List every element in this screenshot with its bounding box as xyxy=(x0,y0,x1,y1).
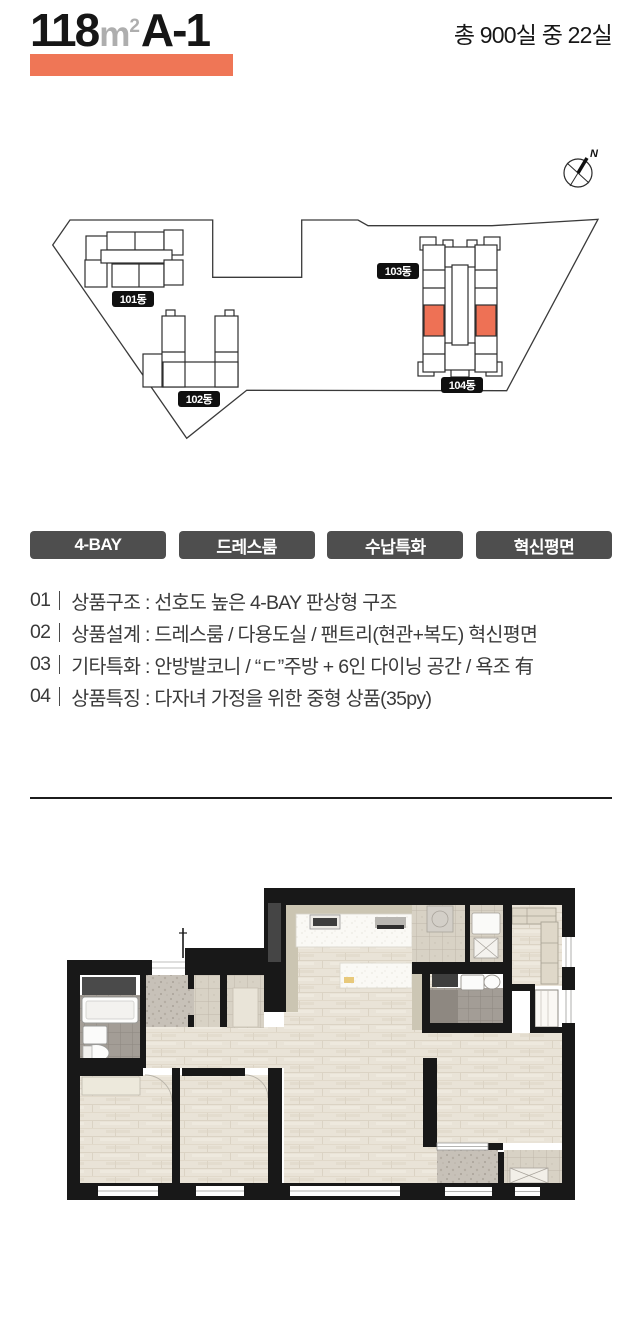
feature-row-4: 04 상품특징 : 다자녀 가정을 위한 중형 상품(35py) xyxy=(30,680,537,712)
badge-storage: 수납특화 xyxy=(327,531,463,559)
area-unit: m2 xyxy=(99,15,140,54)
bedroom-closet xyxy=(82,1077,140,1095)
building-label-103: 103동 xyxy=(377,263,419,279)
feature-text: 기타특화 : 안방발코니 / “ㄷ”주방 + 6인 다이닝 공간 / 욕조 有 xyxy=(71,650,533,679)
building-101 xyxy=(85,230,183,287)
duct-shaft xyxy=(268,903,281,962)
compass-n-label: N xyxy=(590,148,599,160)
highlighted-unit-right xyxy=(476,305,496,336)
building-label-102: 102동 xyxy=(178,391,220,407)
feature-text: 상품설계 : 드레스룸 / 다용도실 / 팬트리(현관+복도) 혁신평면 xyxy=(71,618,537,647)
building-102 xyxy=(143,310,238,387)
feature-number: 01 xyxy=(30,589,50,612)
svg-text:101동: 101동 xyxy=(120,293,147,306)
feature-row-2: 02 상품설계 : 드레스룸 / 다용도실 / 팬트리(현관+복도) 혁신평면 xyxy=(30,616,537,648)
utility-rooms xyxy=(412,904,503,962)
feature-separator xyxy=(59,623,60,642)
built-in-closet xyxy=(535,990,558,1027)
total-rooms-label: 총 900실 중 22실 xyxy=(454,16,612,50)
unit-info-page: 118m2A-1 총 900실 중 22실 xyxy=(0,0,642,1319)
feature-text: 상품특징 : 다자녀 가정을 위한 중형 상품(35py) xyxy=(71,682,431,711)
sink-icon xyxy=(83,1026,107,1044)
page-title: 118m2A-1 xyxy=(30,0,209,62)
floor-plan-illustration xyxy=(60,880,580,1205)
unit-type: A-1 xyxy=(141,4,209,56)
feature-list: 01 상품구조 : 선호도 높은 4-BAY 판상형 구조 02 상품설계 : … xyxy=(30,584,537,712)
shower-area xyxy=(430,990,458,1023)
feature-number: 04 xyxy=(30,685,50,708)
feature-row-3: 03 기타특화 : 안방발코니 / “ㄷ”주방 + 6인 다이닝 공간 / 욕조… xyxy=(30,648,537,680)
entrance-door xyxy=(152,958,185,975)
feature-separator xyxy=(59,687,60,706)
feature-separator xyxy=(59,655,60,674)
svg-text:103동: 103동 xyxy=(385,265,412,278)
svg-text:102동: 102동 xyxy=(186,393,213,406)
island-counter xyxy=(340,963,412,988)
area-value: 118 xyxy=(30,4,98,56)
highlighted-unit-left xyxy=(424,305,444,336)
feature-number: 03 xyxy=(30,653,50,676)
section-divider xyxy=(30,797,612,799)
building-label-101: 101동 xyxy=(112,291,154,307)
svg-text:104동: 104동 xyxy=(449,379,476,392)
feature-text: 상품구조 : 선호도 높은 4-BAY 판상형 구조 xyxy=(71,586,396,615)
building-103-104 xyxy=(418,237,502,377)
badge-dressroom: 드레스룸 xyxy=(179,531,315,559)
bathroom-1 xyxy=(80,977,140,1062)
storage-closet xyxy=(82,977,136,995)
feature-separator xyxy=(59,591,60,610)
building-label-104: 104동 xyxy=(441,377,483,393)
site-plan-map: 101동 102동 103동 104동 N xyxy=(30,140,615,450)
feature-badges: 4-BAY 드레스룸 수납특화 혁신평면 xyxy=(30,531,612,559)
badge-4bay: 4-BAY xyxy=(30,531,166,559)
feature-row-1: 01 상품구조 : 선호도 높은 4-BAY 판상형 구조 xyxy=(30,584,537,616)
compass-icon: N xyxy=(564,148,599,187)
badge-innovative-plan: 혁신평면 xyxy=(476,531,612,559)
toilet-icon xyxy=(484,975,500,989)
washer-icon xyxy=(427,906,453,932)
accent-bar xyxy=(30,54,233,76)
feature-number: 02 xyxy=(30,621,50,644)
sink-icon xyxy=(461,975,484,990)
